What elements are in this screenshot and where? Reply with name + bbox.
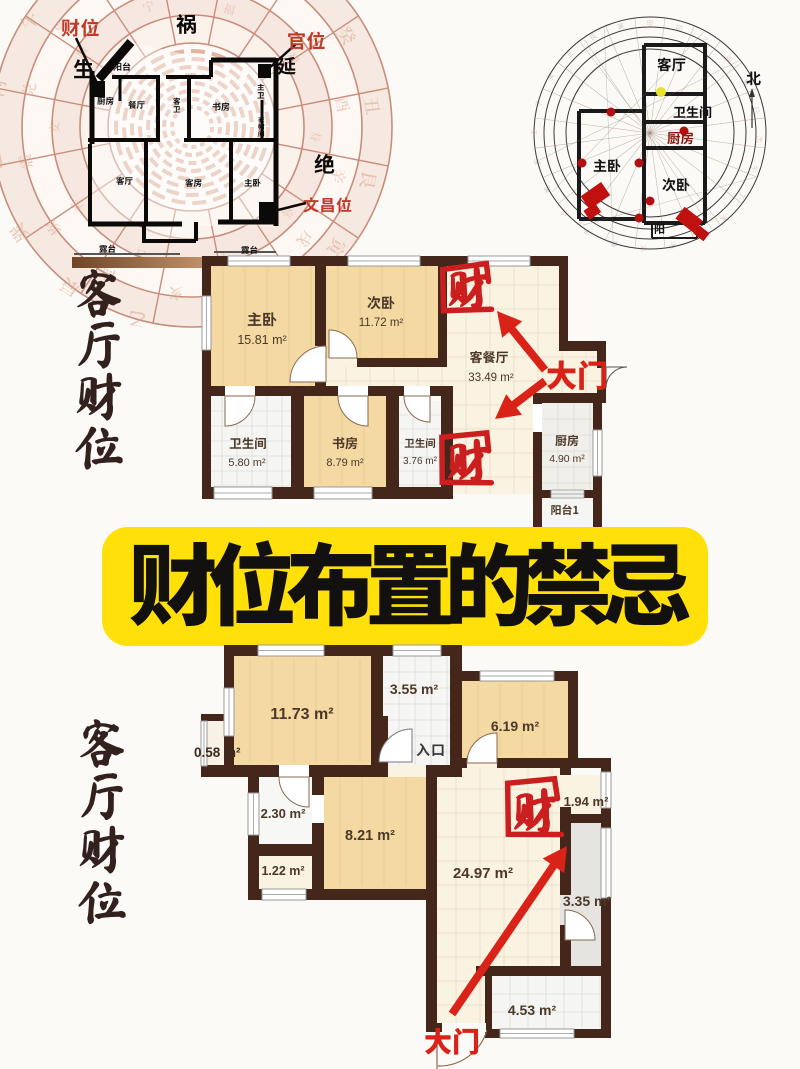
svg-text:4.53 m²: 4.53 m² [508, 1002, 557, 1018]
svg-text:11.72 m²: 11.72 m² [359, 317, 404, 329]
svg-text:3.55 m²: 3.55 m² [390, 681, 439, 697]
svg-text:1.22 m²: 1.22 m² [261, 864, 304, 878]
svg-text:3.35 m²: 3.35 m² [563, 893, 612, 909]
svg-text:6.19 m²: 6.19 m² [491, 718, 540, 734]
svg-text:1.94 m²: 1.94 m² [564, 794, 609, 809]
svg-text:3.76 m²: 3.76 m² [403, 456, 438, 467]
svg-text:8.79 m²: 8.79 m² [326, 457, 364, 469]
svg-text:5.80 m²: 5.80 m² [228, 457, 266, 469]
svg-text:33.49 m²: 33.49 m² [468, 372, 514, 384]
svg-text:8.21 m²: 8.21 m² [345, 828, 395, 844]
svg-text:2.30 m²: 2.30 m² [261, 806, 306, 821]
svg-text:0.58 m²: 0.58 m² [194, 745, 241, 760]
svg-text:24.97 m²: 24.97 m² [453, 865, 513, 882]
svg-text:4.90 m²: 4.90 m² [549, 453, 585, 465]
svg-text:11.73 m²: 11.73 m² [270, 706, 333, 723]
svg-text:15.81 m²: 15.81 m² [237, 333, 286, 347]
